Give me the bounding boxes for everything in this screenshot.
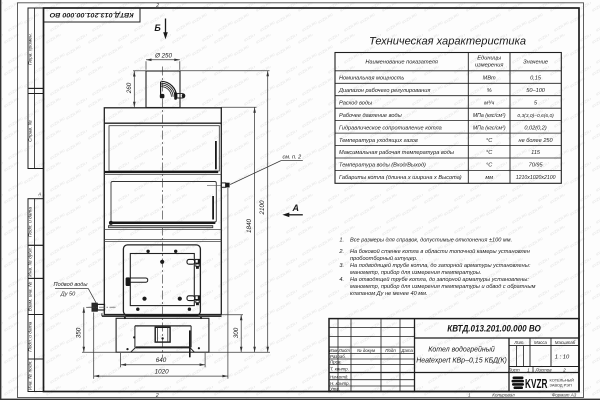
- svg-text:260: 260: [126, 82, 133, 94]
- svg-text:Heatexpert КВр–0,15 КБД(К): Heatexpert КВр–0,15 КБД(К): [416, 358, 507, 365]
- svg-text:2: 2: [155, 393, 159, 399]
- svg-text:115: 115: [531, 150, 541, 156]
- svg-text:клапаном Ду не менее 40 мм.: клапаном Ду не менее 40 мм.: [350, 291, 428, 297]
- svg-text:мм: мм: [485, 175, 493, 181]
- svg-text:не более 250: не более 250: [519, 138, 554, 144]
- svg-text:№ докум: № докум: [357, 348, 375, 353]
- svg-text:4.: 4.: [339, 277, 344, 283]
- svg-text:Наименование показателя: Наименование показателя: [365, 60, 438, 66]
- svg-text:Т. контр.: Т. контр.: [330, 366, 349, 371]
- svg-text:КВТД.013.201.00.000 ВО: КВТД.013.201.00.000 ВО: [447, 323, 541, 333]
- svg-text:манометр, прибор для измерения: манометр, прибор для измерения температу…: [350, 270, 481, 276]
- svg-text:Диапазон рабочего регулировани: Диапазон рабочего регулирования: [338, 88, 430, 94]
- svg-text:А: А: [292, 203, 300, 213]
- svg-text:Инв. № дубл.: Инв. № дубл.: [28, 247, 34, 277]
- svg-text:300: 300: [233, 327, 240, 338]
- svg-text:Копировал: Копировал: [492, 393, 515, 398]
- svg-text:Справ. №: Справ. №: [28, 120, 34, 142]
- svg-text:2: 2: [155, 3, 159, 9]
- svg-text:пробоотборный штуцер.: пробоотборный штуцер.: [350, 255, 418, 262]
- svg-text:Единицы: Единицы: [477, 56, 502, 62]
- svg-text:Подп: Подп: [385, 348, 396, 353]
- svg-text:Дата: Дата: [400, 348, 413, 353]
- svg-text:Номинальная мощность: Номинальная мощность: [339, 76, 404, 82]
- svg-text:350: 350: [76, 327, 83, 338]
- svg-text:см. п. 2: см. п. 2: [282, 154, 301, 160]
- svg-text:На подводящей трубе котла, до: На подводящей трубе котла, до запорной а…: [350, 262, 531, 269]
- svg-text:2100: 2100: [259, 200, 266, 216]
- svg-text:Пров.: Пров.: [330, 360, 342, 365]
- svg-text:2.: 2.: [338, 249, 344, 255]
- svg-text:Максимальная рабочая температу: Максимальная рабочая температура воды: [339, 150, 454, 156]
- svg-text:Гидравлическое сопротивление к: Гидравлическое сопротивление котла: [339, 125, 442, 131]
- svg-text:°С: °С: [486, 163, 493, 169]
- svg-text:1.: 1.: [339, 238, 344, 244]
- svg-text:0,02(0,2): 0,02(0,2): [524, 125, 547, 131]
- svg-text:Нач.отд.: Нач.отд.: [330, 375, 349, 380]
- svg-text:Разраб.: Разраб.: [330, 354, 346, 359]
- svg-text:Подвод воды: Подвод воды: [54, 282, 88, 288]
- svg-text:МПа (кгс/см²): МПа (кгс/см²): [473, 113, 506, 119]
- svg-text:Все размеры для справок, допус: Все размеры для справок, допустимые откл…: [350, 238, 512, 244]
- svg-text:Изм: Изм: [329, 348, 337, 353]
- svg-text:70/95: 70/95: [529, 163, 544, 169]
- svg-text:А: А: [37, 192, 41, 197]
- svg-text:1020: 1020: [155, 368, 170, 375]
- svg-text:1 : 10: 1 : 10: [555, 355, 570, 361]
- svg-text:МВт: МВт: [483, 76, 496, 82]
- svg-text:Подп. и дата: Подп. и дата: [28, 207, 34, 237]
- svg-text:Масса: Масса: [534, 340, 548, 345]
- svg-text:Температура уходящих газов: Температура уходящих газов: [339, 138, 418, 144]
- svg-text:Перв. примен.: Перв. примен.: [28, 33, 34, 65]
- svg-text:Масштаб: Масштаб: [555, 340, 576, 345]
- svg-text:ЗАВОД РЭП: ЗАВОД РЭП: [550, 383, 572, 388]
- svg-text:0,3(3,0)–0,6(6,0): 0,3(3,0)–0,6(6,0): [517, 113, 554, 119]
- svg-text:Габариты котла (длинна х ширин: Габариты котла (длинна х ширина х Высота…: [339, 175, 462, 181]
- svg-text:На боковой стенке котла в обла: На боковой стенке котла в области топочн…: [350, 248, 530, 255]
- svg-text:%: %: [487, 88, 492, 94]
- svg-text:Ø 250: Ø 250: [154, 53, 172, 60]
- svg-text:Техническая характеристика: Техническая характеристика: [369, 36, 526, 48]
- svg-text:Значение: Значение: [523, 60, 548, 66]
- svg-text:Ду 50: Ду 50: [60, 292, 76, 298]
- svg-text:Листов: Листов: [535, 367, 553, 372]
- svg-text:Лист: Лист: [507, 367, 520, 372]
- svg-text:KVZR: KVZR: [525, 377, 548, 391]
- svg-text:Расход воды: Расход воды: [339, 100, 372, 106]
- svg-text:Формат А3: Формат А3: [552, 393, 577, 398]
- svg-text:Рабочее давление воды: Рабочее давление воды: [339, 113, 402, 119]
- svg-text:°С: °С: [486, 138, 493, 144]
- svg-text:1210х1020х2100: 1210х1020х2100: [516, 175, 556, 181]
- svg-text:Подп. и дата: Подп. и дата: [28, 321, 34, 351]
- svg-text:Лит.: Лит.: [513, 340, 524, 345]
- svg-text:0,15: 0,15: [530, 76, 542, 82]
- svg-text:Взам. инв. №: Взам. инв. №: [28, 282, 34, 312]
- svg-text:КВТД.013.201.00.000 ВО: КВТД.013.201.00.000 ВО: [49, 11, 134, 18]
- svg-text:2: 2: [562, 367, 566, 372]
- svg-text:3.: 3.: [339, 263, 344, 269]
- svg-text:Котел водогрейный: Котел водогрейный: [428, 346, 495, 354]
- svg-text:640: 640: [156, 357, 167, 364]
- svg-text:Б: Б: [154, 23, 161, 33]
- svg-text:Утв.: Утв.: [330, 387, 340, 392]
- svg-text:манометр, прибор для измерения: манометр, прибор для измерения температу…: [350, 284, 536, 290]
- svg-text:°С: °С: [486, 150, 493, 156]
- svg-text:МПа (кгс/см²): МПа (кгс/см²): [473, 125, 506, 131]
- svg-text:Инв. № подл.: Инв. № подл.: [28, 360, 34, 390]
- svg-text:м³/ч: м³/ч: [484, 100, 494, 106]
- svg-text:измерения: измерения: [475, 63, 503, 69]
- svg-text:1840: 1840: [246, 219, 253, 234]
- svg-text:Температура воды (Вход/Выход): Температура воды (Вход/Выход): [339, 163, 426, 169]
- svg-text:На отводящей трубе котла, до з: На отводящей трубе котла, до запорной ар…: [350, 276, 529, 283]
- svg-text:50–100: 50–100: [526, 88, 546, 94]
- svg-text:Лист: Лист: [338, 348, 351, 353]
- svg-text:Н. контр.: Н. контр.: [330, 381, 350, 386]
